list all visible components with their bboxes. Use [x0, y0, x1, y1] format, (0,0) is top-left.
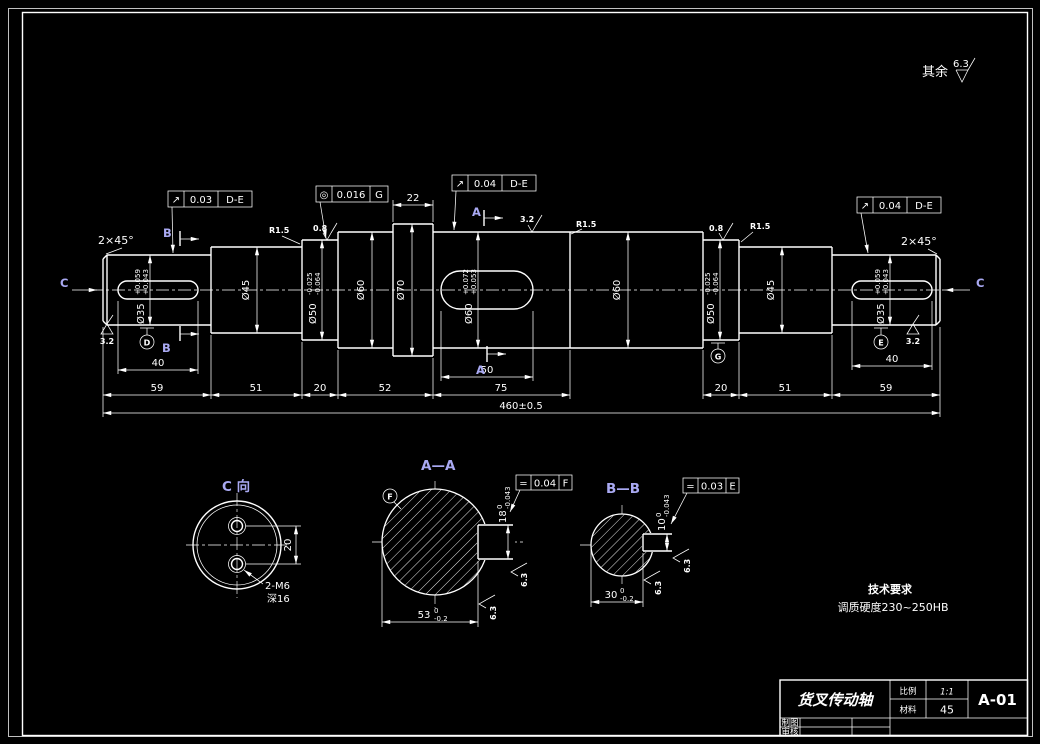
section-aa: A—A F = 0.04 F 18 0 -0.043 53 0 -0.2 6.3 [372, 458, 572, 627]
tech-req-line1: 调质硬度230~250HB [837, 600, 948, 614]
svg-text:0.04: 0.04 [879, 201, 901, 212]
datum-e: E [874, 328, 888, 349]
dim-d35-right: Ø35 [875, 303, 887, 324]
view-arrow-c-right: C [945, 276, 984, 290]
svg-text:C: C [976, 276, 984, 290]
svg-text:6.3: 6.3 [489, 606, 498, 620]
roughness-aa-2: 6.3 [479, 595, 498, 620]
section-aa-title: A—A [421, 458, 456, 474]
section-bb: B—B = 0.03 E 10 0 -0.043 30 0 -0.2 6.3 6… [580, 478, 739, 607]
scale-value: 1:1 [940, 688, 954, 698]
tech-req-title: 技术要求 [868, 582, 913, 596]
roughness-0.8-left: 0.8 [313, 223, 337, 240]
shaft-outline [90, 224, 952, 356]
roughness-0.8-right: 0.8 [709, 223, 733, 240]
svg-text:6.3: 6.3 [683, 559, 692, 573]
dim-d60-left: Ø60 [355, 280, 367, 301]
svg-text:+0.043: +0.043 [882, 269, 890, 295]
svg-text:F: F [563, 479, 569, 490]
svg-text:-0.025: -0.025 [704, 272, 712, 295]
surface-note-value: 6.3 [953, 59, 969, 70]
dim-53: 53 [418, 610, 431, 621]
dim-d45-right: Ø45 [765, 280, 777, 301]
svg-text:-0.043: -0.043 [663, 494, 671, 517]
drawing-frame [9, 9, 1033, 737]
surface-note: 其余 6.3 [922, 58, 975, 82]
svg-text:-0.064: -0.064 [314, 272, 322, 295]
svg-text:0: 0 [655, 513, 663, 517]
dim-10: 10 [657, 518, 668, 531]
svg-text:6.3: 6.3 [654, 581, 663, 595]
svg-text:0.03: 0.03 [190, 195, 212, 206]
svg-text:0.04: 0.04 [474, 179, 496, 190]
roughness-3.2-right: 3.2 [906, 315, 920, 346]
dim-59-left: 59 [151, 383, 164, 394]
svg-text:D-E: D-E [226, 195, 244, 206]
material-value: 45 [940, 704, 954, 717]
svg-text:-0.2: -0.2 [620, 595, 634, 603]
material-label: 材料 [899, 705, 917, 716]
svg-text:D-E: D-E [510, 179, 528, 190]
view-arrow-c-left: C [60, 276, 97, 290]
svg-text:C: C [60, 276, 68, 290]
svg-text:B: B [163, 226, 172, 240]
datum-d: D [140, 328, 154, 349]
svg-text:G: G [375, 190, 383, 201]
dim-d45-left: Ø45 [240, 280, 252, 301]
chamfer-note-right: 2×45° [901, 235, 937, 248]
svg-text:3.2: 3.2 [906, 337, 920, 346]
dim-40-left: 40 [152, 358, 165, 369]
hole-note-1: 2-M6 [265, 581, 290, 592]
cad-drawing-canvas: 其余 6.3 Ø35 +0.059 +0.043 [0, 0, 1040, 744]
dim-d35-left: Ø35 [135, 303, 147, 324]
svg-text:B: B [162, 341, 171, 355]
dim-30: 30 [605, 590, 618, 601]
svg-text:+0.053: +0.053 [470, 269, 478, 295]
dim-d50-right: Ø50 [705, 303, 717, 324]
surface-marks: 0.8 0.8 3.2 3.2 3.2 [100, 215, 920, 346]
roughness-bb-1: 6.3 [673, 549, 692, 573]
svg-text:↗: ↗ [861, 201, 869, 212]
dim-20-left: 20 [314, 383, 327, 394]
fcf-frames: ↗ 0.03 D-E ◎ 0.016 G ↗ 0.04 D-E ↗ 0.04 D… [168, 175, 941, 253]
drawing-svg: 其余 6.3 Ø35 +0.059 +0.043 [0, 0, 1040, 744]
svg-text:+0.043: +0.043 [142, 269, 150, 295]
svg-text:A: A [472, 205, 481, 219]
chamfer-note-left: 2×45° [98, 234, 134, 247]
svg-text:-0.025: -0.025 [306, 272, 314, 295]
svg-text:=: = [686, 482, 694, 493]
svg-text:E: E [878, 339, 883, 348]
dim-d60-right: Ø60 [611, 280, 623, 301]
length-dims: 22 40 50 40 59 51 20 52 75 20 51 59 460±… [103, 193, 940, 417]
svg-text:0.016: 0.016 [337, 190, 366, 201]
roughness-aa-1: 6.3 [511, 563, 529, 587]
fcf-symmetry-aa: = 0.04 F [510, 475, 572, 512]
section-bb-title: B—B [606, 481, 640, 497]
svg-text:0.03: 0.03 [701, 482, 723, 493]
svg-text:E: E [729, 482, 735, 493]
section-arrow-b-bottom: B [162, 326, 199, 355]
dim-d50-left: Ø50 [307, 303, 319, 324]
datum-f: F [383, 489, 401, 509]
svg-text:0: 0 [496, 505, 504, 509]
datum-g: G [711, 343, 725, 363]
svg-text:+0.059: +0.059 [134, 269, 142, 295]
dim-22: 22 [407, 193, 420, 204]
dim-d70: Ø70 [395, 280, 407, 301]
svg-text:0.04: 0.04 [534, 479, 556, 490]
svg-text:6.3: 6.3 [520, 573, 529, 587]
dim-40-right: 40 [886, 354, 899, 365]
drawing-number: A-01 [978, 691, 1017, 709]
svg-text:0: 0 [620, 587, 624, 595]
view-c-title: C 向 [222, 478, 250, 495]
svg-text:G: G [715, 353, 722, 362]
roughness-3.2-mid: 3.2 [520, 215, 542, 232]
svg-text:0.8: 0.8 [709, 224, 724, 233]
section-markers: 2×45° 2×45° C C B B A A [60, 205, 984, 377]
svg-text:F: F [387, 493, 392, 502]
section-aa-body [382, 489, 488, 595]
svg-text:-0.043: -0.043 [504, 486, 512, 509]
svg-text:+0.072: +0.072 [462, 269, 470, 295]
svg-text:↗: ↗ [456, 179, 464, 190]
svg-text:↗: ↗ [172, 195, 180, 206]
dim-59-right: 59 [880, 383, 893, 394]
fillet-mid: R1.5 [576, 220, 597, 229]
dim-20-right: 20 [715, 383, 728, 394]
part-name: 货叉传动轴 [797, 691, 874, 709]
fillet-right: R1.5 [750, 222, 771, 231]
dim-18: 18 [498, 510, 509, 523]
dim-d60-center: Ø60 [463, 303, 475, 324]
row-shenhe: 审核 [782, 727, 800, 738]
dim-51-right: 51 [779, 383, 792, 394]
hole-note-2: 深16 [267, 593, 290, 605]
view-c: C 向 20 2-M6 深16 [186, 478, 301, 605]
roughness-bb-2: 6.3 [644, 571, 663, 595]
svg-text:◎: ◎ [320, 190, 329, 201]
dim-total: 460±0.5 [499, 401, 542, 412]
svg-text:0.8: 0.8 [313, 224, 328, 233]
dim-51-left: 51 [250, 383, 263, 394]
section-arrow-a-top: A [472, 205, 503, 226]
svg-text:-0.064: -0.064 [712, 272, 720, 295]
svg-text:-0.2: -0.2 [434, 615, 448, 623]
svg-text:D-E: D-E [915, 201, 933, 212]
svg-text:3.2: 3.2 [520, 215, 534, 224]
fcf-symmetry-bb: = 0.03 E [671, 478, 739, 524]
fillet-left: R1.5 [269, 226, 290, 235]
svg-text:A: A [476, 363, 485, 377]
dim-20-holes: 20 [283, 539, 294, 552]
scale-label: 比例 [899, 686, 916, 697]
svg-text:=: = [519, 479, 527, 490]
svg-text:0: 0 [434, 607, 438, 615]
dim-52: 52 [379, 383, 392, 394]
svg-text:3.2: 3.2 [100, 337, 114, 346]
section-arrow-b-top: B [163, 226, 199, 246]
surface-note-prefix: 其余 [922, 64, 948, 80]
title-block: 货叉传动轴 比例 1:1 材料 45 A-01 制图 审核 [780, 680, 1028, 738]
dim-75: 75 [495, 383, 508, 394]
tech-requirements: 技术要求 调质硬度230~250HB [837, 582, 948, 614]
svg-text:+0.059: +0.059 [874, 269, 882, 295]
svg-text:D: D [144, 339, 151, 348]
